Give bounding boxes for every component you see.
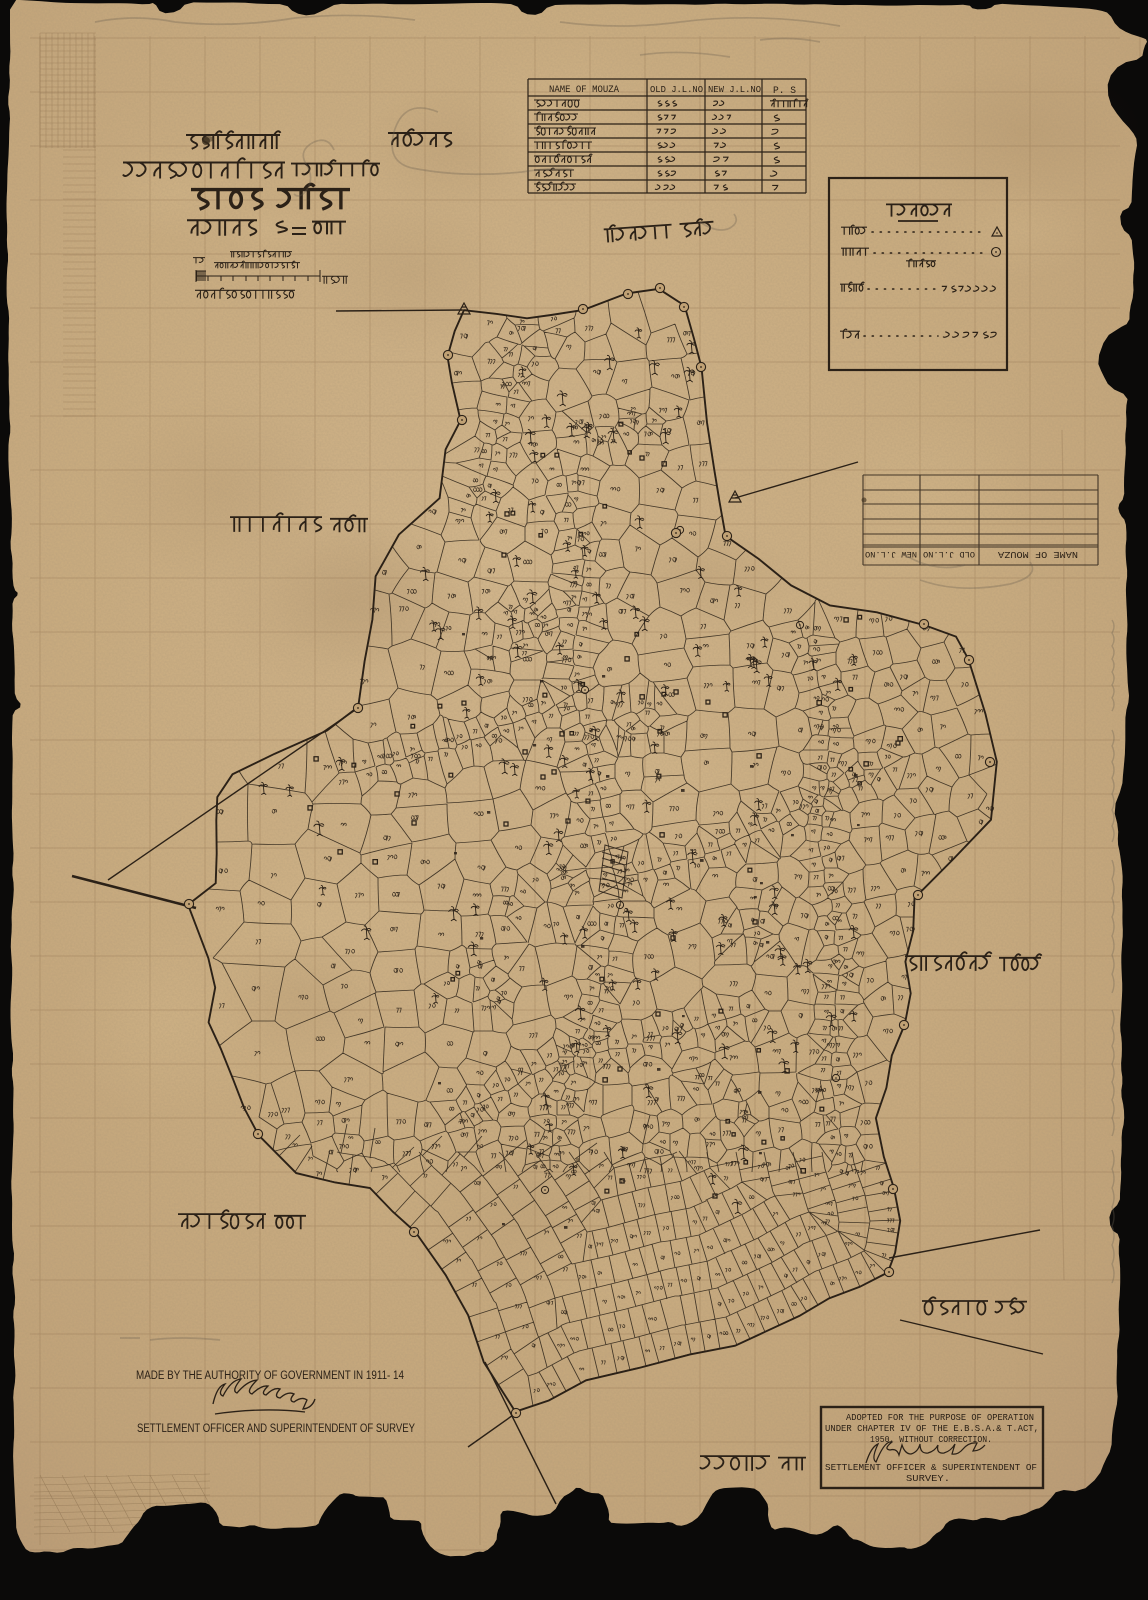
svg-text:MADE BY THE AUTHORITY OF GOVER: MADE BY THE AUTHORITY OF GOVERNMENT IN 1… xyxy=(136,1370,405,1382)
svg-text:ADOPTED FOR THE PURPOSE OF OPE: ADOPTED FOR THE PURPOSE OF OPERATION xyxy=(846,1412,1034,1423)
svg-text:OLD J.L.NO: OLD J.L.NO xyxy=(923,549,975,559)
svg-text:SETTLEMENT OFFICER AND SUPERIN: SETTLEMENT OFFICER AND SUPERINTENDENT OF… xyxy=(137,1423,415,1435)
svg-text:SURVEY.: SURVEY. xyxy=(906,1473,950,1484)
svg-text:OLD J.L.NO: OLD J.L.NO xyxy=(650,85,703,95)
svg-text:P. S: P. S xyxy=(773,86,796,97)
svg-text:NAME OF MOUZA: NAME OF MOUZA xyxy=(997,549,1078,559)
svg-text:UNDER CHAPTER IV OF THE E.B.S.: UNDER CHAPTER IV OF THE E.B.S.A.& T.ACT, xyxy=(825,1423,1039,1434)
svg-text:SETTLEMENT OFFICER & SUPERINTE: SETTLEMENT OFFICER & SUPERINTENDENT OF xyxy=(825,1462,1037,1473)
svg-text:NAME OF MOUZA: NAME OF MOUZA xyxy=(549,85,619,96)
svg-text:NEW J.L.NO: NEW J.L.NO xyxy=(708,85,761,95)
